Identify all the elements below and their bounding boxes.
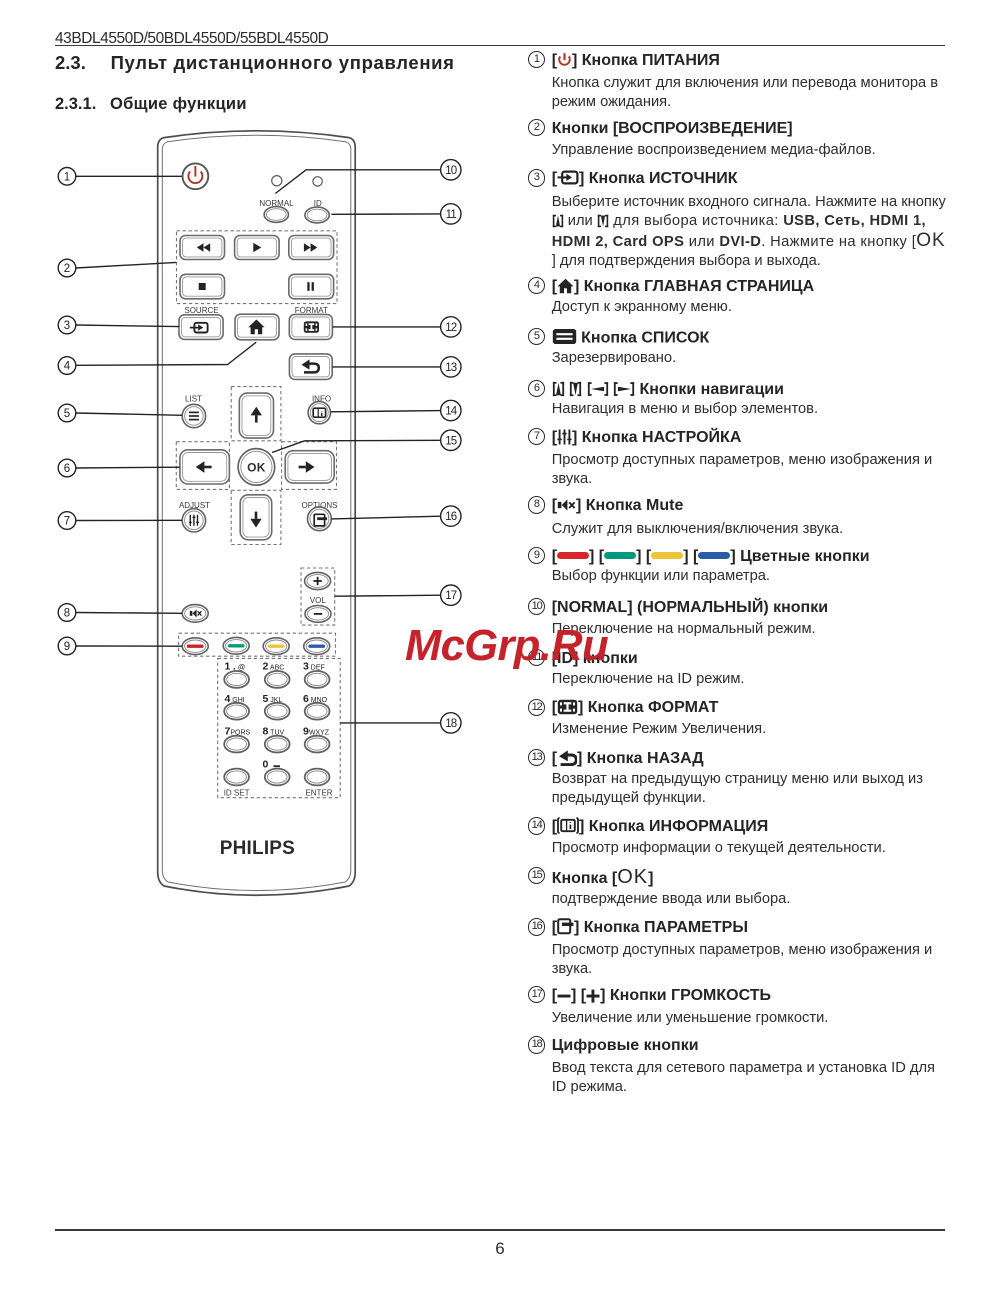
svg-text:ENTER: ENTER bbox=[305, 789, 332, 798]
svg-text:8: 8 bbox=[64, 608, 70, 620]
svg-text:FORMAT: FORMAT bbox=[295, 306, 328, 315]
svg-text:ID SET: ID SET bbox=[224, 789, 250, 798]
svg-text:PHILIPS: PHILIPS bbox=[220, 838, 295, 859]
svg-text:12: 12 bbox=[445, 322, 457, 334]
svg-text:2: 2 bbox=[64, 263, 70, 275]
svg-text:6: 6 bbox=[64, 463, 70, 475]
svg-text:14: 14 bbox=[445, 406, 458, 418]
svg-text:10: 10 bbox=[445, 165, 457, 177]
svg-text:16: 16 bbox=[445, 511, 457, 523]
svg-text:18: 18 bbox=[445, 718, 457, 730]
svg-text:3: 3 bbox=[64, 320, 70, 332]
svg-text:1: 1 bbox=[64, 171, 70, 183]
svg-text:4: 4 bbox=[64, 361, 71, 373]
svg-text:OPTIONS: OPTIONS bbox=[301, 501, 337, 510]
svg-text:17: 17 bbox=[445, 590, 457, 602]
svg-text:5: 5 bbox=[64, 408, 70, 420]
svg-text:13: 13 bbox=[445, 362, 457, 374]
svg-text:SOURCE: SOURCE bbox=[184, 306, 218, 315]
svg-text:VOL: VOL bbox=[310, 596, 327, 605]
svg-text:0: 0 bbox=[263, 759, 269, 771]
svg-text:11: 11 bbox=[446, 209, 457, 221]
svg-text:7: 7 bbox=[64, 516, 70, 528]
svg-text:15: 15 bbox=[445, 435, 457, 447]
svg-text:9: 9 bbox=[64, 641, 70, 653]
svg-text:OK: OK bbox=[247, 460, 266, 474]
svg-text:LIST: LIST bbox=[185, 395, 202, 404]
